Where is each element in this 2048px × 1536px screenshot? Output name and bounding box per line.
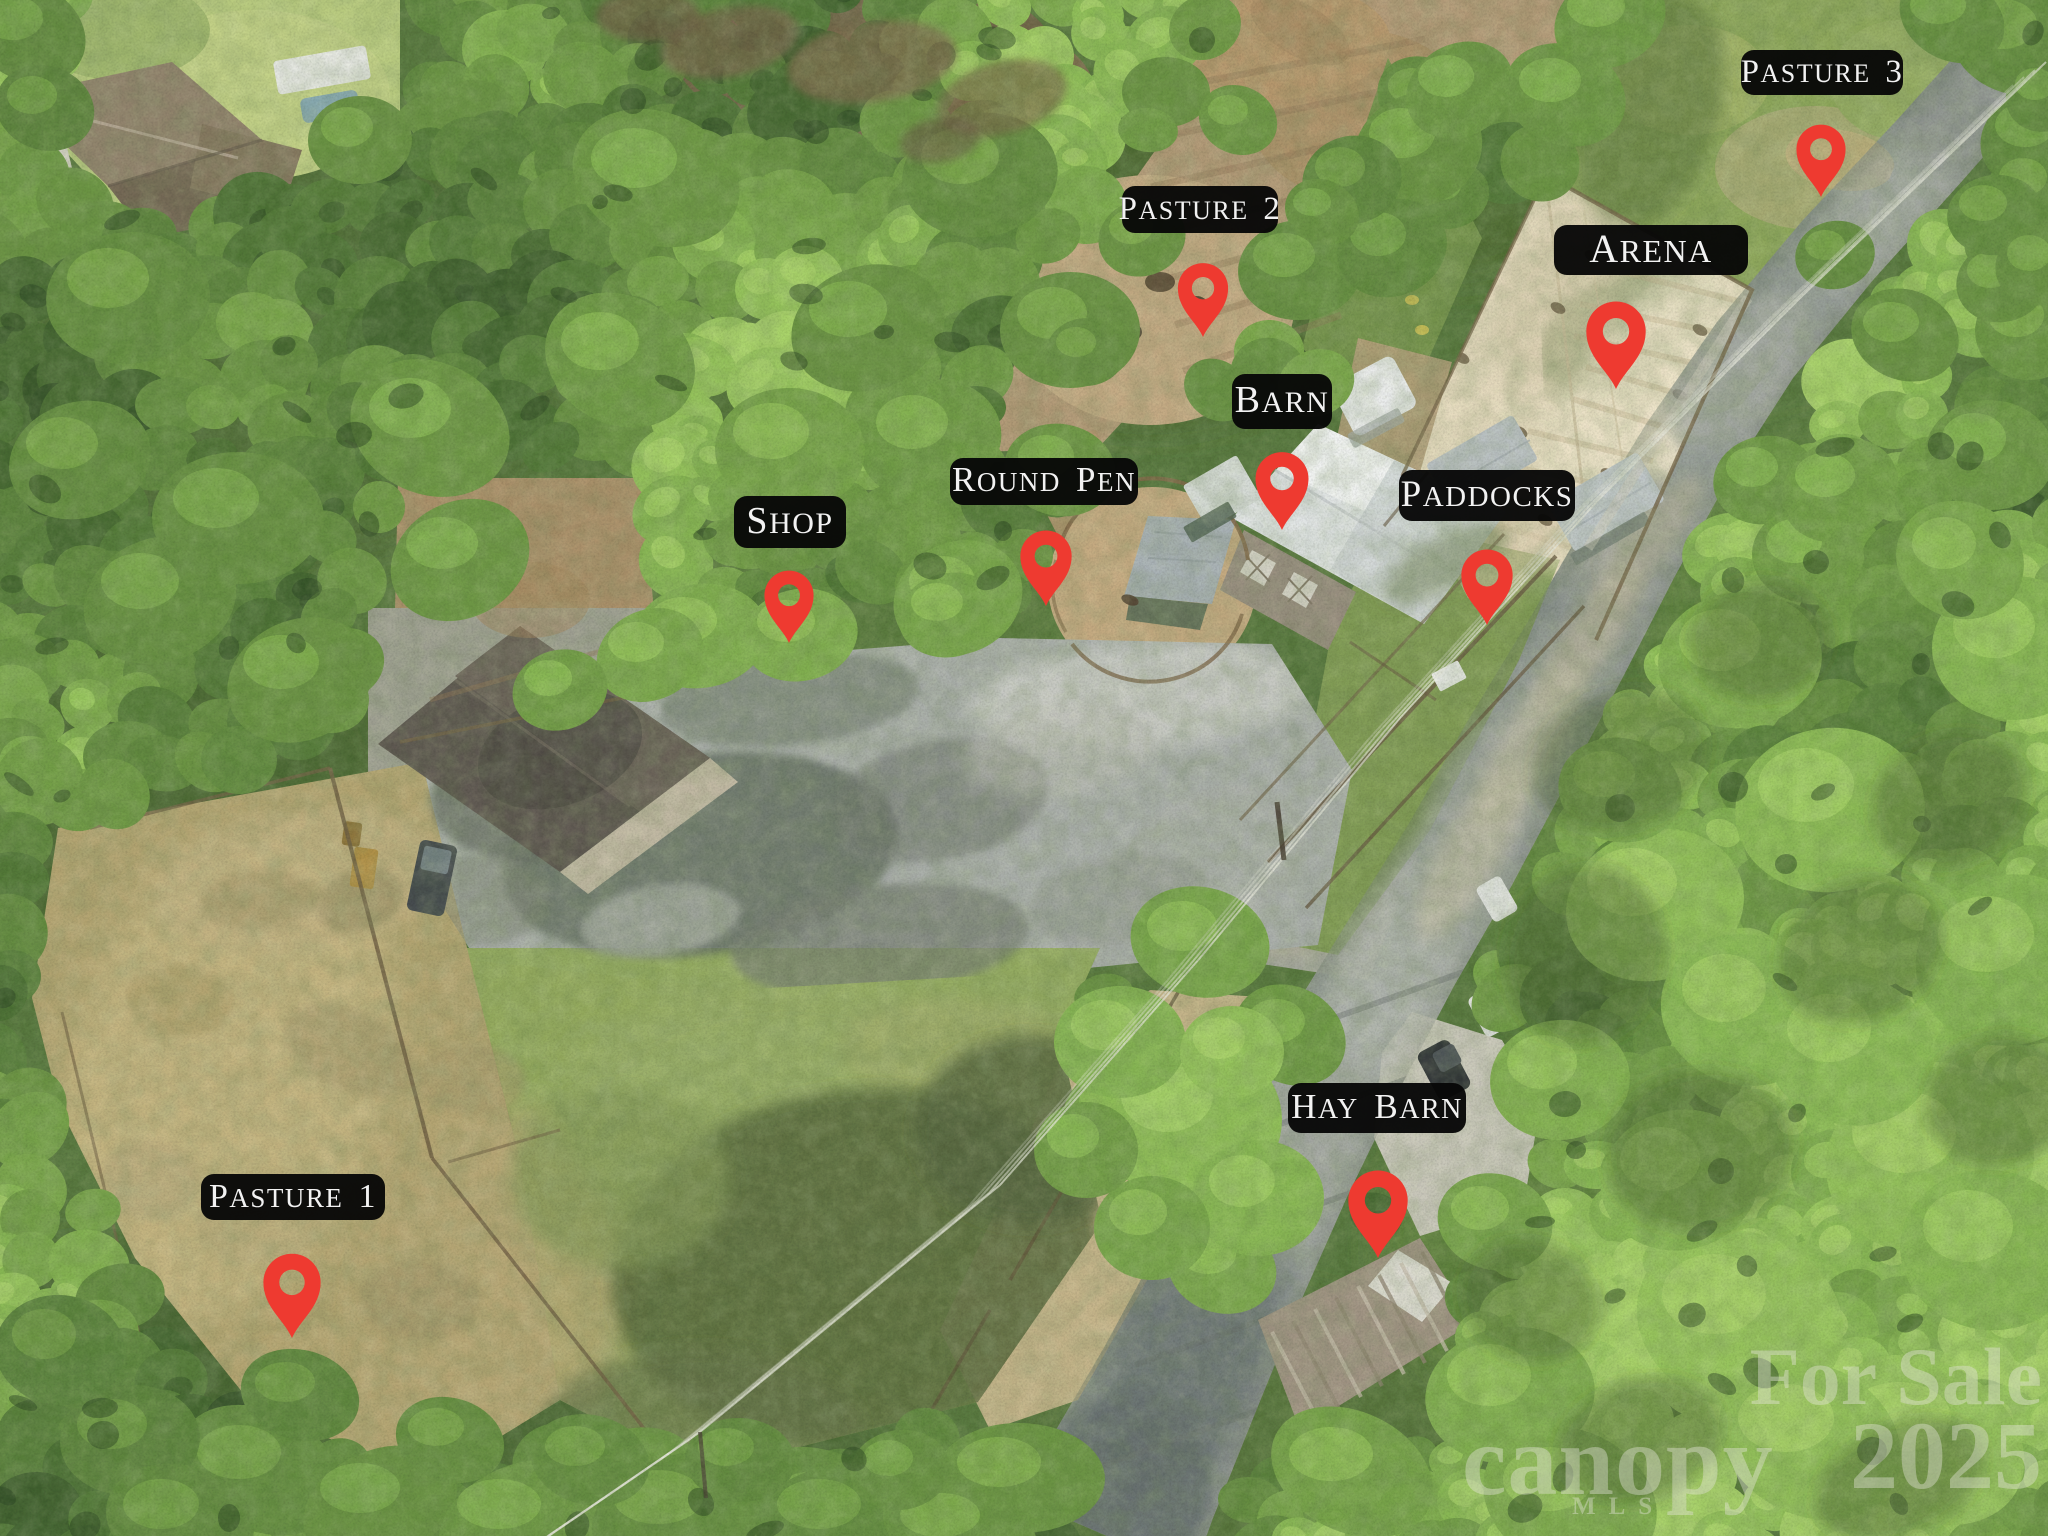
svg-text:PASTURE 1: PASTURE 1 [209,1178,377,1215]
svg-text:BARN: BARN [1235,379,1330,421]
svg-text:PASTURE 2: PASTURE 2 [1119,191,1282,227]
svg-text:PADDOCKS: PADDOCKS [1401,474,1574,515]
svg-text:MLS: MLS [1572,1493,1665,1520]
svg-text:2025: 2025 [1850,1402,2042,1509]
svg-text:SHOP: SHOP [746,500,833,542]
svg-text:ARENA: ARENA [1589,226,1713,271]
svg-text:PASTURE 3: PASTURE 3 [1741,54,1904,90]
